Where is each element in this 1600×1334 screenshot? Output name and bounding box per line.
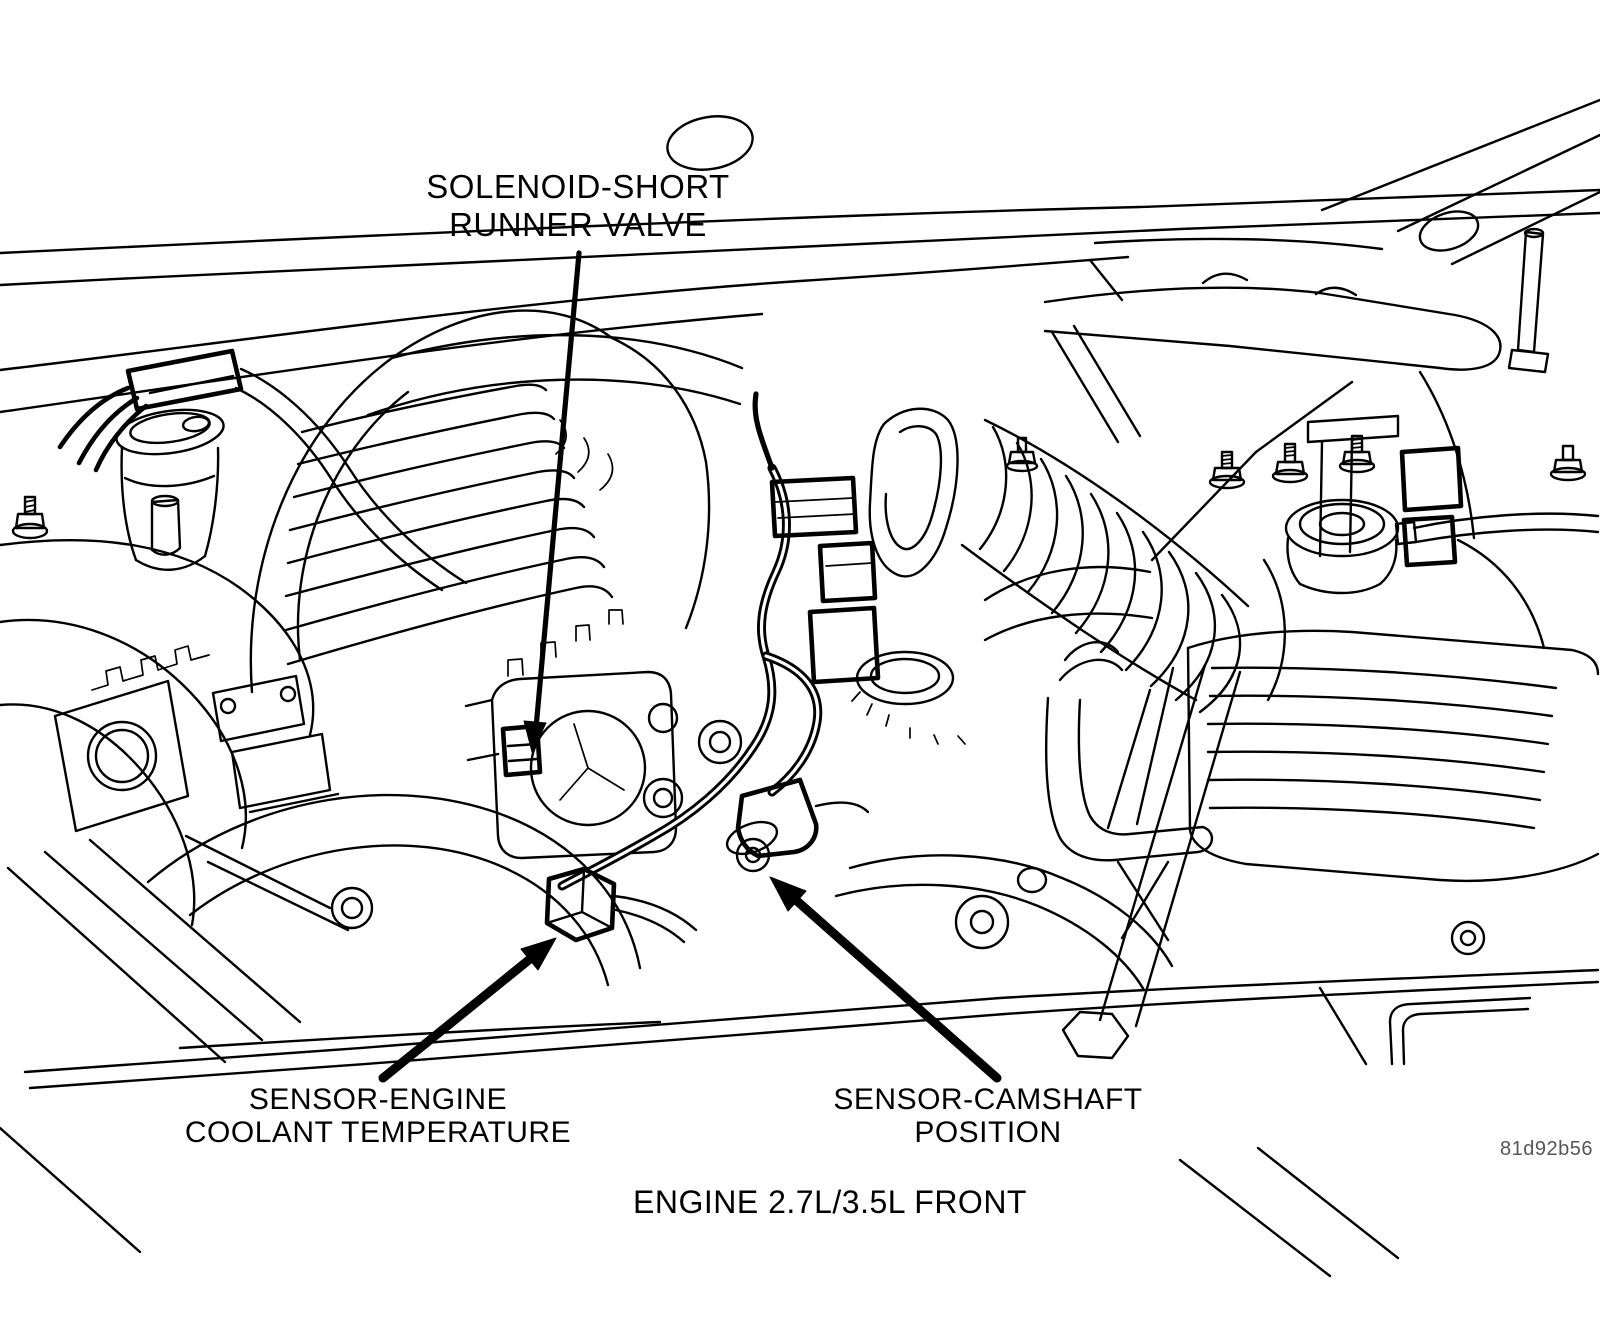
figure-caption: ENGINE 2.7L/3.5L FRONT (580, 1184, 1080, 1221)
callout-camshaft-line2: POSITION (728, 1116, 1248, 1149)
callout-sensor-camshaft-position: SENSOR-CAMSHAFT POSITION (728, 1083, 1248, 1149)
callout-solenoid-short-runner-valve: SOLENOID-SHORT RUNNER VALVE (378, 168, 778, 244)
callout-sensor-engine-coolant-temperature: SENSOR-ENGINE COOLANT TEMPERATURE (118, 1083, 638, 1149)
callout-coolant-line1: SENSOR-ENGINE (118, 1083, 638, 1116)
engine-wiring-harness (562, 394, 818, 886)
heater-hose (1018, 665, 1240, 1026)
figure-code: 81d92b56 (1438, 1138, 1593, 1161)
callout-coolant-line2: COOLANT TEMPERATURE (118, 1116, 638, 1149)
oil-filler-cap (699, 652, 965, 763)
hood-prop-rod (1509, 229, 1548, 372)
camshaft-position-sensor (723, 780, 868, 860)
right-valve-cover-lines (836, 567, 1172, 990)
callout-camshaft-line1: SENSOR-CAMSHAFT (728, 1083, 1248, 1116)
air-intake-hose (870, 409, 1248, 712)
right-bracket (1264, 416, 1544, 700)
hood-panel-lines (0, 100, 1600, 412)
air-cleaner-box (1188, 631, 1598, 881)
intake-manifold (251, 311, 742, 692)
valve-cover (55, 646, 209, 831)
camshaft-leader-arrow-icon (770, 877, 997, 1078)
callout-solenoid-line2: RUNNER VALVE (378, 206, 778, 244)
callout-solenoid-line1: SOLENOID-SHORT (378, 168, 778, 206)
throttle-body (466, 610, 677, 858)
radiator-cap (1286, 500, 1598, 593)
bolt-stud-left (13, 496, 180, 555)
engine-diagram-page: SOLENOID-SHORT RUNNER VALVE SENSOR-ENGIN… (0, 0, 1600, 1334)
mounting-studs (1007, 436, 1585, 488)
strut-brace-bar (1045, 260, 1500, 560)
